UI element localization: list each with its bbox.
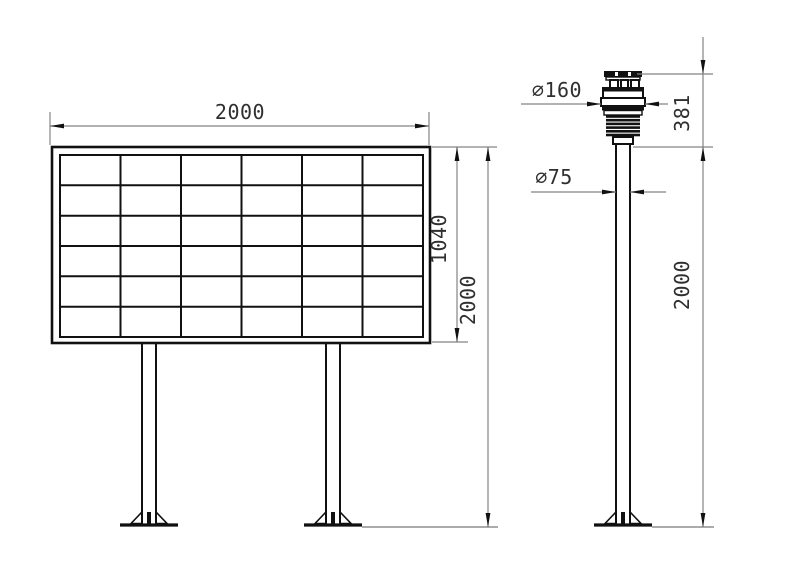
sensor-collar <box>613 137 633 144</box>
arrowhead-down <box>486 513 491 527</box>
sensor-cap <box>604 71 642 77</box>
sensor-posts <box>610 80 639 88</box>
dim-text-board-total-height: 2000 <box>456 275 480 325</box>
board-legs <box>142 343 340 524</box>
arrowhead-left <box>50 124 64 129</box>
station-figure: ∅160 381 ∅75 2000 <box>521 37 714 527</box>
arrowhead-down <box>701 513 706 527</box>
arrowhead-right <box>587 102 601 107</box>
arrowhead-left <box>645 102 659 107</box>
arrowhead-up <box>455 147 460 161</box>
dim-text-sensor-height: 381 <box>670 94 694 132</box>
dim-text-panel-height: 1040 <box>427 214 451 264</box>
board-base-right <box>304 512 362 525</box>
station-pole <box>616 144 630 524</box>
panel-grid <box>60 155 423 337</box>
sensor-louvers <box>606 115 640 136</box>
dim-text-pole-diameter: ∅75 <box>535 165 573 189</box>
arrowhead-right <box>415 124 429 129</box>
arrowhead-down <box>701 60 706 74</box>
arrowhead-right <box>602 190 616 195</box>
technical-drawing: 2000 <box>0 0 800 563</box>
dim-board-total-height: 2000 <box>456 147 490 527</box>
dim-board-width: 2000 <box>50 100 429 145</box>
board-figure: 2000 <box>50 100 498 527</box>
station-base <box>594 512 652 525</box>
arrowhead-up <box>486 147 491 161</box>
arrowhead-left <box>630 190 644 195</box>
dim-pole-height: 2000 <box>670 260 705 527</box>
arrowhead-up <box>701 147 706 161</box>
dim-pole-diameter: ∅75 <box>531 165 666 194</box>
sensor-flange <box>601 98 645 106</box>
dim-text-pole-height: 2000 <box>670 260 694 310</box>
board-base-left <box>120 512 178 525</box>
sensor-head <box>601 71 645 144</box>
arrowhead-down <box>455 328 460 342</box>
dim-text-board-width: 2000 <box>215 100 265 124</box>
dim-text-sensor-diameter: ∅160 <box>532 78 582 102</box>
drawing-svg: 2000 <box>0 0 800 563</box>
